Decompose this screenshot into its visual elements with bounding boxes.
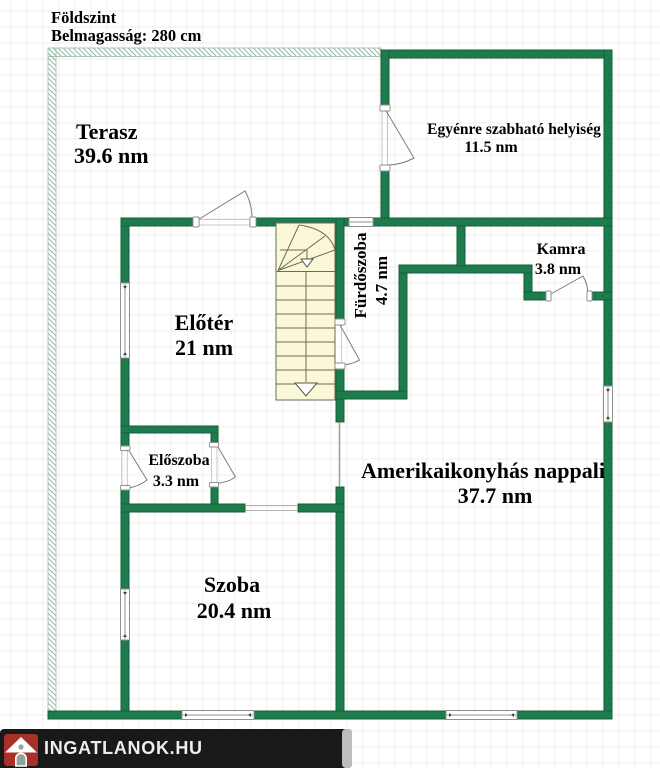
svg-text:Előszoba: Előszoba xyxy=(148,452,209,469)
svg-text:Egyénre szabható helyiség: Egyénre szabható helyiség xyxy=(427,121,601,138)
svg-text:Szoba: Szoba xyxy=(204,572,260,597)
svg-text:39.6 nm: 39.6 nm xyxy=(74,143,149,168)
svg-text:Kamra: Kamra xyxy=(537,241,586,258)
svg-text:21 nm: 21 nm xyxy=(175,335,233,360)
svg-text:3.8 nm: 3.8 nm xyxy=(535,261,582,278)
svg-text:INGATLANOK.HU: INGATLANOK.HU xyxy=(44,738,203,758)
svg-text:Terasz: Terasz xyxy=(76,119,138,144)
svg-text:3.3 nm: 3.3 nm xyxy=(153,473,200,490)
svg-text:4.7 nm: 4.7 nm xyxy=(372,256,391,305)
svg-text:Előtér: Előtér xyxy=(175,310,234,335)
svg-text:Belmagasság: 280 cm: Belmagasság: 280 cm xyxy=(51,26,202,45)
svg-text:Fürdőszoba: Fürdőszoba xyxy=(351,232,370,318)
svg-text:37.7 nm: 37.7 nm xyxy=(458,483,533,508)
svg-text:Földszint: Földszint xyxy=(51,8,117,27)
svg-text:20.4 nm: 20.4 nm xyxy=(197,598,272,623)
svg-text:11.5 nm: 11.5 nm xyxy=(464,139,518,156)
svg-text:Amerikaikonyhás nappali: Amerikaikonyhás nappali xyxy=(361,458,605,483)
